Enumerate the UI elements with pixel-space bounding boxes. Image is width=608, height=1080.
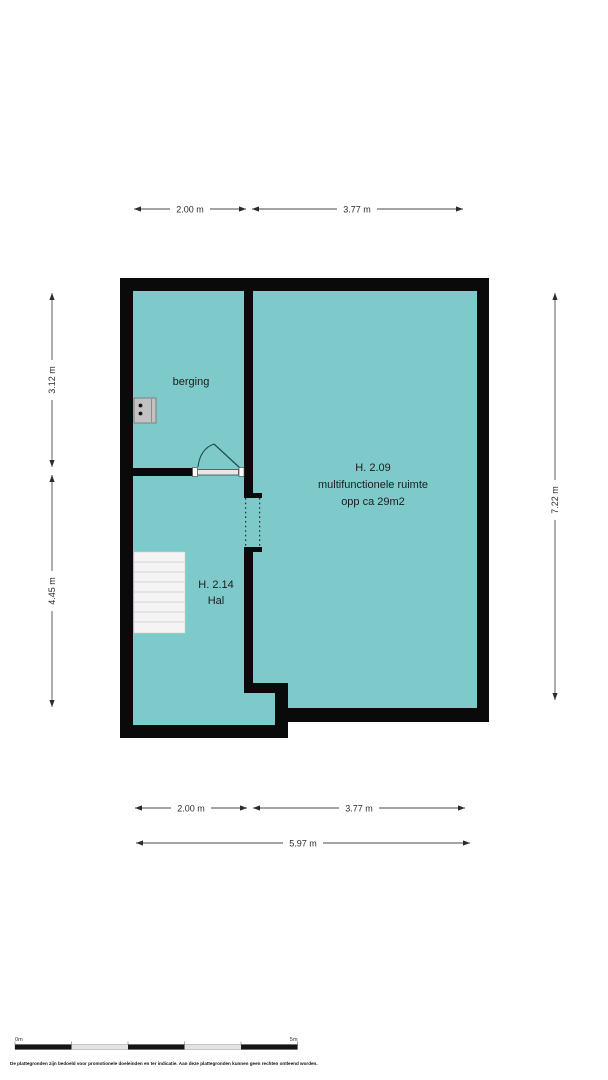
dim-right: 7.22 m (549, 293, 561, 700)
door-panel (198, 470, 239, 476)
room-label-multi-area: opp ca 29m2 (341, 496, 405, 508)
scale-bar: 0m 5m (15, 1037, 298, 1050)
wall-stub-top (244, 493, 262, 498)
dim-bottom-total: 5.97 m (136, 837, 470, 849)
dim-top-right-label: 3.77 m (343, 205, 371, 215)
door-jamb-right (239, 468, 244, 477)
floorplan-page: berging H. 2.09 multifunctionele ruimte … (0, 0, 608, 1080)
scale-bar-end-label: 5m (290, 1037, 298, 1043)
floorplan: berging H. 2.09 multifunctionele ruimte … (120, 278, 489, 738)
dim-left-lower: 4.45 m (46, 475, 58, 707)
dim-top-left: 2.00 m (134, 203, 246, 215)
dim-bottom-right: 3.77 m (253, 802, 465, 814)
wall-stub-bottom (244, 547, 262, 552)
disclaimer-text: De plattegronden zijn bedoeld voor promo… (10, 1061, 318, 1066)
room-label-hal-name: Hal (208, 595, 225, 607)
room-label-multi-code: H. 2.09 (355, 462, 390, 474)
dim-bottom-left: 2.00 m (135, 802, 247, 814)
room-label-hal-code: H. 2.14 (198, 579, 233, 591)
dim-left-upper-label: 3.12 m (47, 366, 57, 394)
dim-left-lower-label: 4.45 m (47, 577, 57, 605)
room-label-berging: berging (173, 376, 210, 388)
dim-bottom-total-label: 5.97 m (289, 839, 317, 849)
meter-cabinet-icon (134, 398, 156, 423)
door-jamb-left (193, 468, 198, 477)
dim-bottom-right-label: 3.77 m (345, 804, 373, 814)
floorplan-svg: berging H. 2.09 multifunctionele ruimte … (0, 0, 608, 1080)
dim-left-upper: 3.12 m (46, 293, 58, 467)
dim-bottom-left-label: 2.00 m (177, 804, 205, 814)
dim-top-left-label: 2.00 m (176, 205, 204, 215)
stairs (134, 552, 185, 633)
dim-top-right: 3.77 m (252, 203, 463, 215)
scale-bar-start-label: 0m (15, 1037, 23, 1043)
room-label-multi-name: multifunctionele ruimte (318, 479, 428, 491)
dim-right-label: 7.22 m (550, 486, 560, 514)
